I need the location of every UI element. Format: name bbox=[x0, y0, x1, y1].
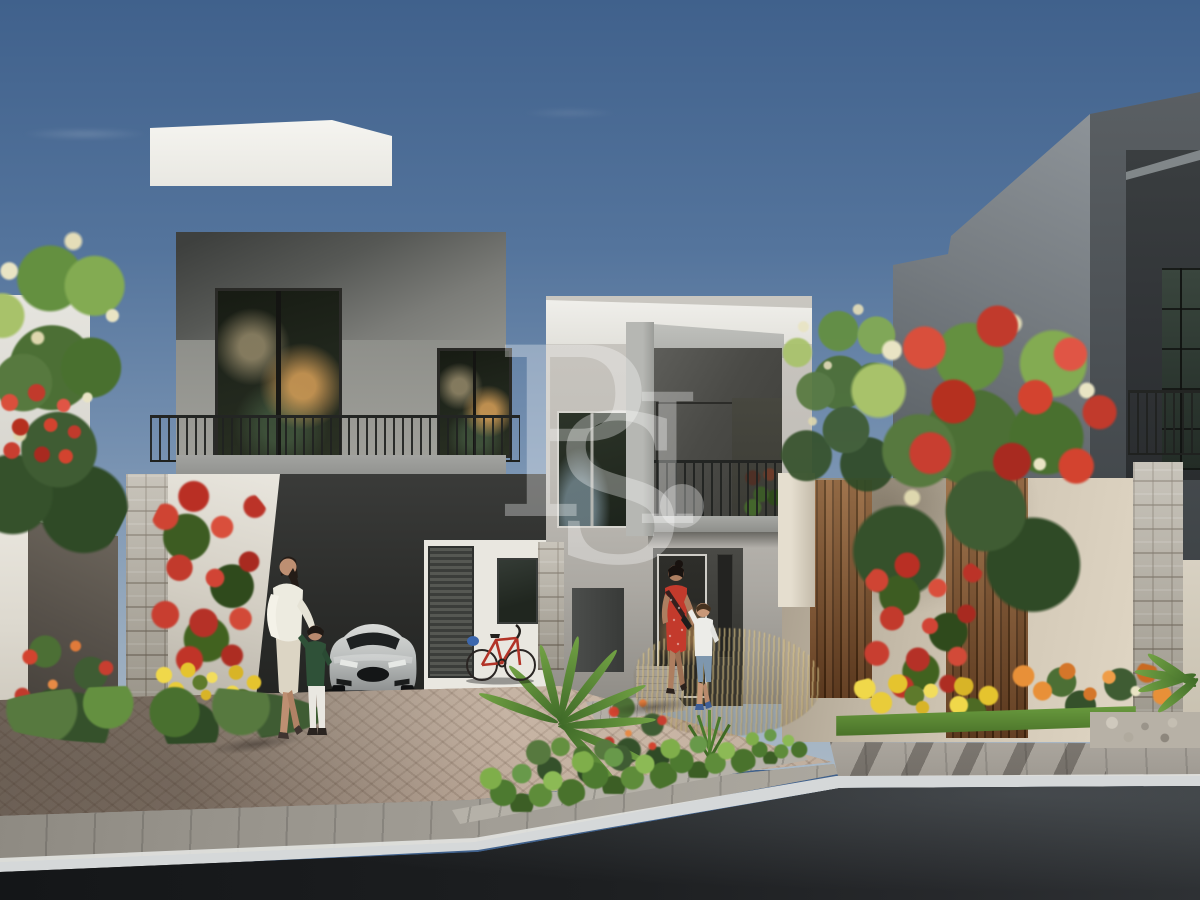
middle-balcony-left-pier bbox=[626, 322, 654, 536]
middle-balcony-slab-shadow bbox=[648, 532, 782, 548]
middle-house-window bbox=[557, 411, 630, 528]
hedge-row-4 bbox=[738, 728, 810, 764]
middle-balcony-railing bbox=[648, 460, 782, 523]
cloud-wisp bbox=[20, 128, 150, 140]
red-bicycle bbox=[462, 618, 540, 686]
palm-right-corner bbox=[1146, 630, 1200, 734]
poinciana-red-flowers bbox=[866, 294, 1158, 509]
boy-white-shirt bbox=[686, 600, 722, 718]
child-green-sweater bbox=[296, 622, 336, 750]
middle-balcony-slab bbox=[648, 516, 782, 532]
cloud-wisp bbox=[520, 108, 620, 118]
render-canvas: P S I bbox=[0, 0, 1200, 900]
carport-window bbox=[497, 558, 538, 624]
